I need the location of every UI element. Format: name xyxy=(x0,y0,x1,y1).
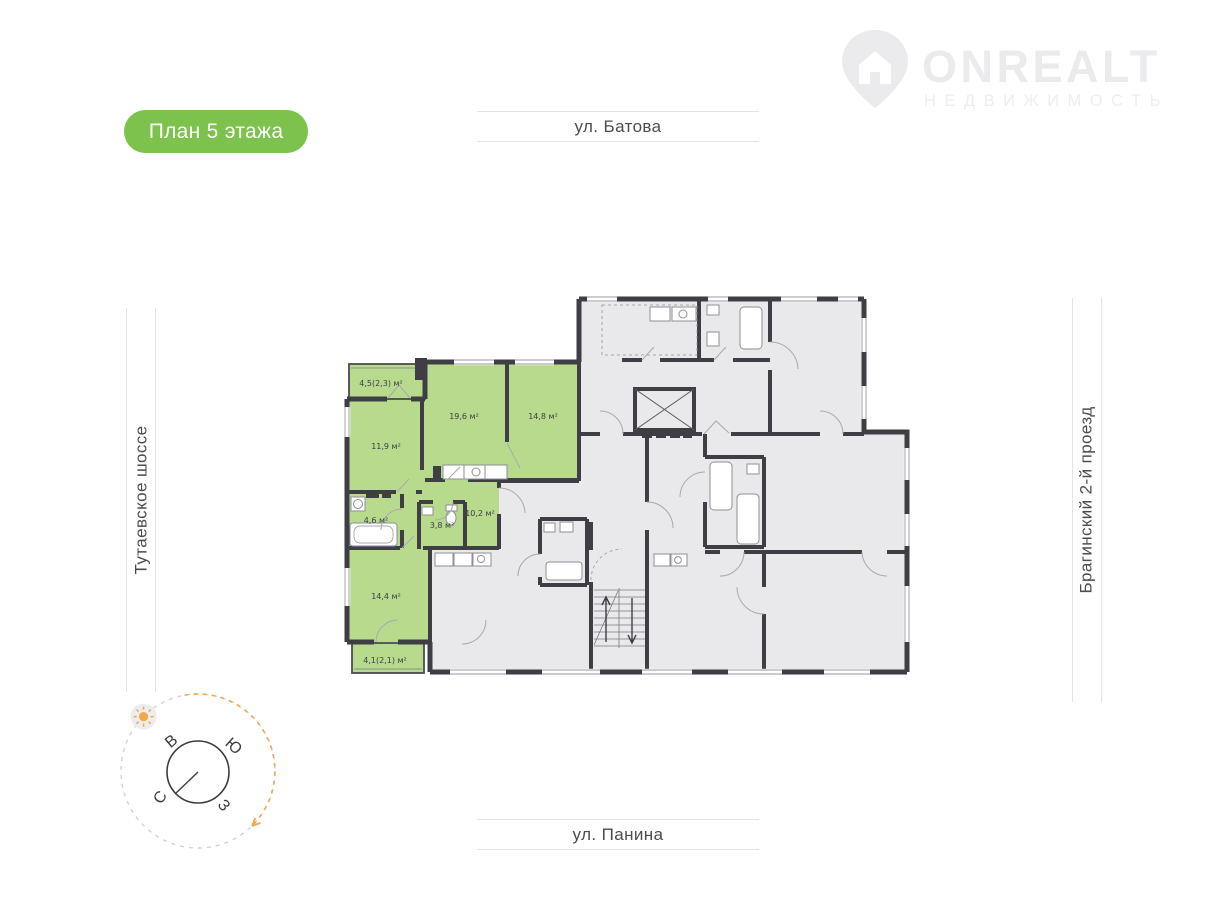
street-label-top: ул. Батова xyxy=(477,111,759,142)
compass: В Ю С З xyxy=(116,690,284,854)
room-label-bathroom: 4,6 м² xyxy=(364,516,389,525)
sun-icon xyxy=(131,704,157,730)
room-label-wc: 3,8 м² xyxy=(430,521,455,530)
room-label-bedroom-right: 14,8 м² xyxy=(528,412,558,421)
room-label-balcony-top: 4,5(2,3) м² xyxy=(359,379,402,388)
brand-logo: ONREALT НЕДВИЖИМОСТЬ xyxy=(834,26,1204,112)
wall-pier xyxy=(415,358,427,380)
logo-pin-icon xyxy=(842,30,908,108)
street-label-left: Тутаевское шоссе xyxy=(126,308,156,692)
street-label-bottom: ул. Панина xyxy=(477,819,759,850)
room-label-bedroom-bottom: 14,4 м² xyxy=(371,592,401,601)
page: ONREALT НЕДВИЖИМОСТЬ План 5 этажа ул. Ба… xyxy=(0,0,1223,910)
room-label-bedroom-left: 11,9 м² xyxy=(371,442,401,451)
street-label-left-text: Тутаевское шоссе xyxy=(131,426,151,575)
room-label-hall: 10,2 м² xyxy=(465,509,495,518)
street-label-right: Брагинский 2-й проезд xyxy=(1072,298,1102,702)
compass-letter-west: З xyxy=(214,797,233,815)
brand-name: ONREALT xyxy=(922,41,1161,92)
compass-letter-south: Ю xyxy=(222,735,245,758)
room-label-balcony-bottom: 4,1(2,1) м² xyxy=(363,656,406,665)
street-label-right-text: Брагинский 2-й проезд xyxy=(1077,406,1097,593)
street-label-bottom-text: ул. Панина xyxy=(573,825,664,845)
floor-plan-badge: План 5 этажа xyxy=(124,110,308,153)
brand-subtitle: НЕДВИЖИМОСТЬ xyxy=(924,92,1169,110)
staircase xyxy=(594,588,645,648)
street-label-top-text: ул. Батова xyxy=(574,117,661,137)
compass-letter-north: С xyxy=(150,788,171,807)
elevator-shaft xyxy=(635,389,694,430)
floor-plan: 4,5(2,3) м² 19,6 м² 14,8 м² 11,9 м² 4,6 … xyxy=(330,280,922,682)
room-label-living: 19,6 м² xyxy=(449,412,479,421)
